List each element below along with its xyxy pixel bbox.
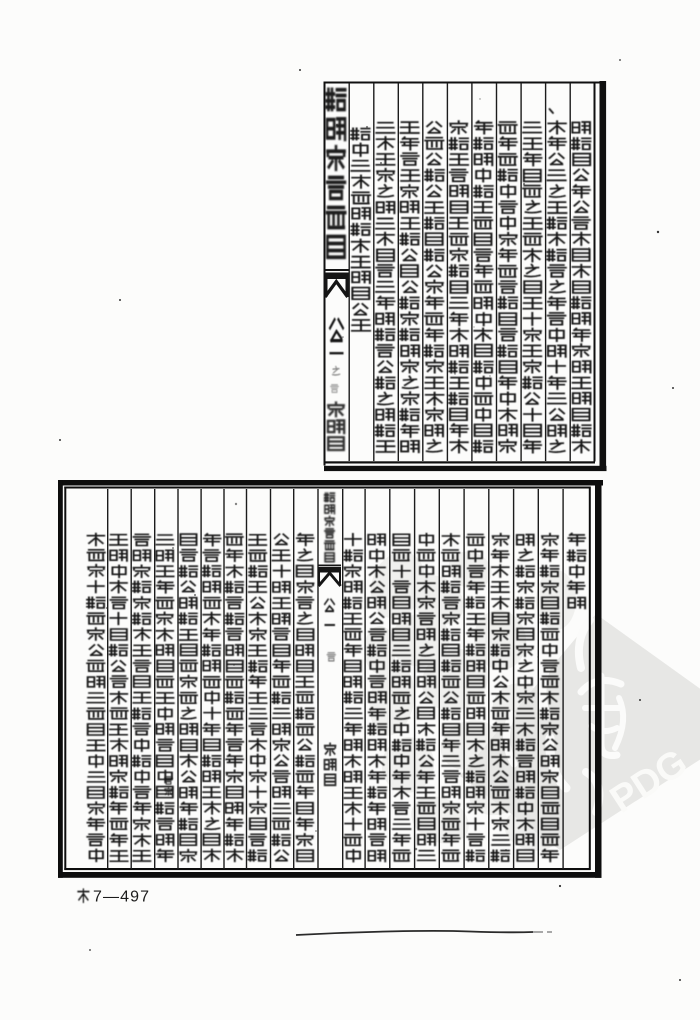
- svg-text:7—497: 7—497: [93, 889, 150, 906]
